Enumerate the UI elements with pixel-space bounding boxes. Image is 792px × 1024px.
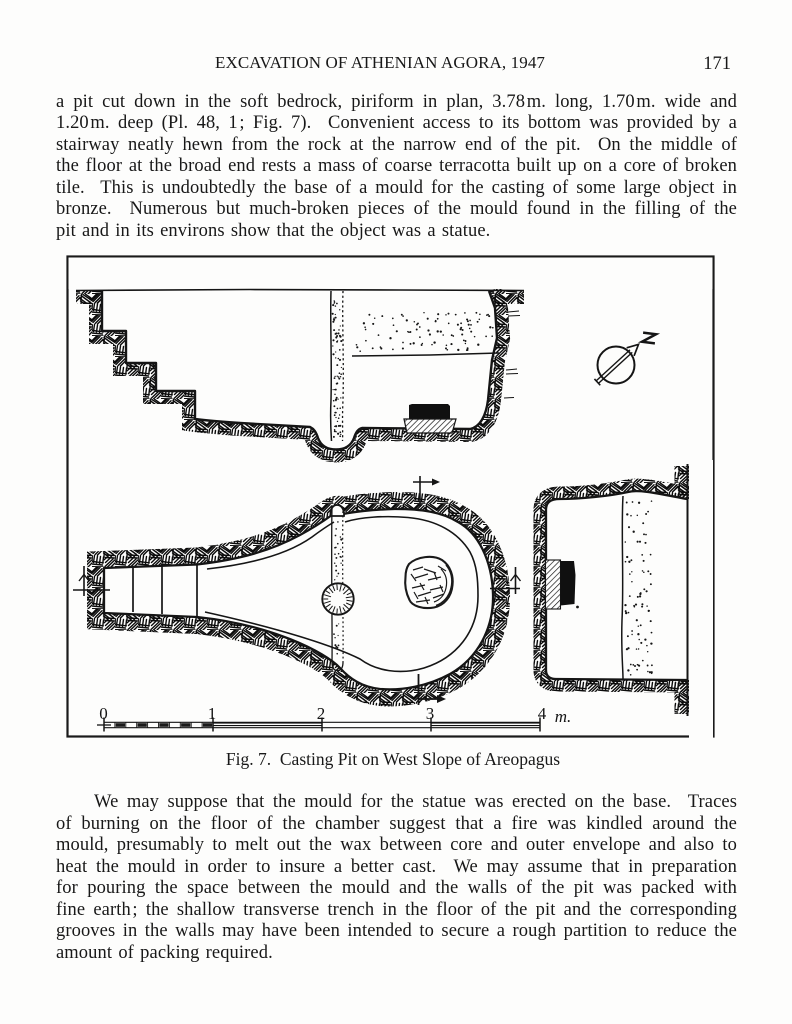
svg-text:0: 0: [99, 704, 108, 723]
svg-text:4: 4: [538, 704, 547, 723]
svg-text:m.: m.: [555, 707, 572, 726]
svg-text:2: 2: [317, 704, 326, 723]
svg-text:3: 3: [426, 704, 435, 723]
svg-text:1: 1: [208, 704, 217, 723]
